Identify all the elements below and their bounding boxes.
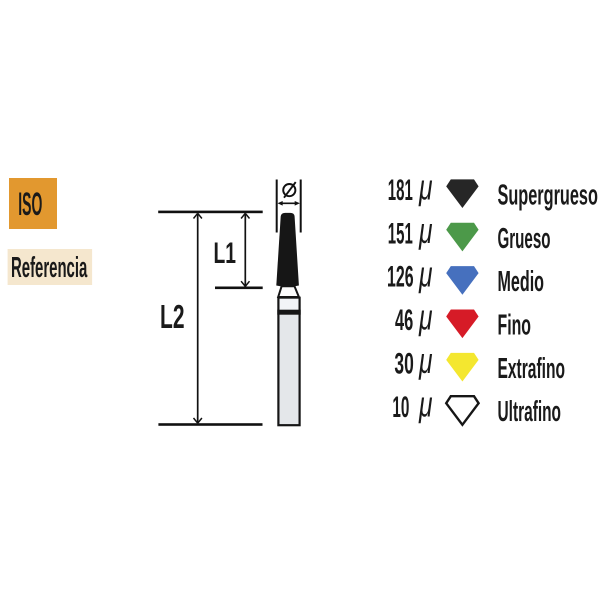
svg-text:Grueso: Grueso: [498, 223, 551, 255]
svg-text:46: 46: [395, 304, 413, 337]
svg-text:126: 126: [387, 261, 414, 294]
svg-text:μ: μ: [418, 297, 432, 338]
svg-text:Supergrueso: Supergrueso: [498, 180, 598, 212]
svg-text:Medio: Medio: [498, 266, 545, 298]
svg-text:L1: L1: [214, 237, 237, 270]
svg-text:μ: μ: [418, 340, 432, 381]
svg-text:μ: μ: [418, 167, 432, 208]
svg-text:181: 181: [388, 174, 413, 207]
svg-text:L2: L2: [160, 299, 185, 336]
svg-text:Extrafino: Extrafino: [498, 353, 566, 385]
svg-text:μ: μ: [418, 384, 432, 425]
svg-text:Fino: Fino: [498, 310, 532, 342]
svg-text:151: 151: [388, 217, 413, 250]
svg-text:ISO: ISO: [18, 186, 42, 222]
svg-text:Ultrafino: Ultrafino: [498, 396, 562, 428]
svg-text:Referencia: Referencia: [11, 252, 88, 284]
svg-text:μ: μ: [418, 253, 432, 294]
svg-text:μ: μ: [418, 210, 432, 251]
svg-text:30: 30: [394, 347, 413, 380]
svg-text:10: 10: [392, 391, 409, 424]
